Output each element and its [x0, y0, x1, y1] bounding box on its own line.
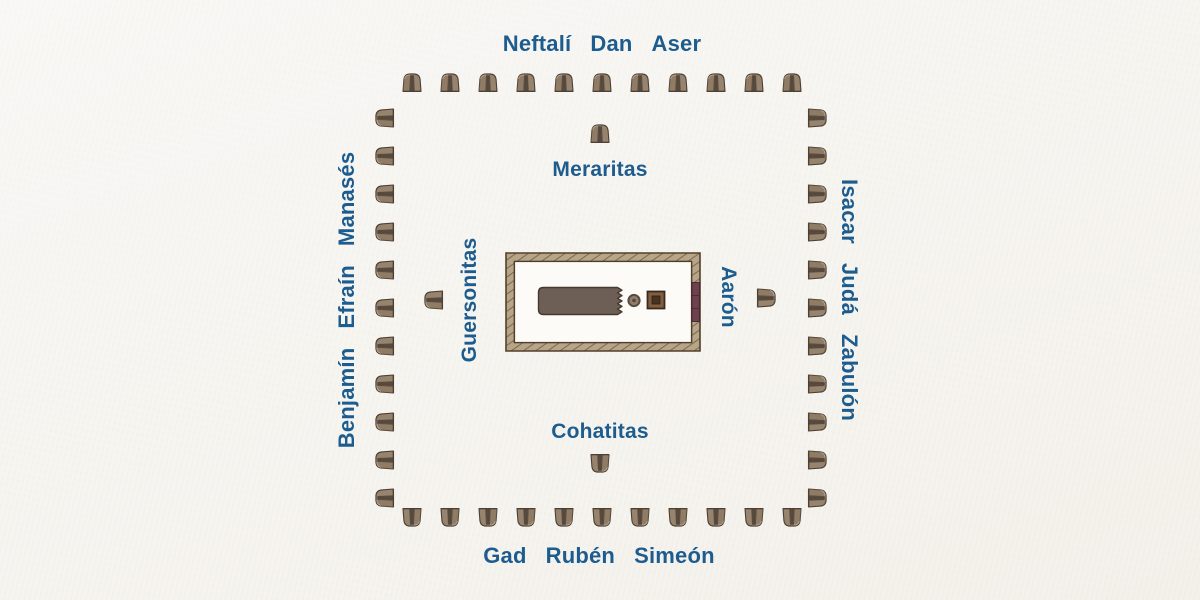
tent-icon	[588, 121, 612, 145]
tent-icon	[400, 506, 424, 530]
tent-icon	[476, 70, 500, 94]
tribe-name: Benjamín	[334, 348, 360, 449]
tribe-name: Judá	[836, 263, 862, 315]
levite-label-west: Guersonitas	[458, 238, 482, 363]
tribe-name: Isacar	[836, 179, 862, 244]
tent-icon	[552, 506, 576, 530]
tribe-name: Dan	[590, 31, 632, 57]
laver-center	[632, 299, 636, 303]
tribe-name: Zabulón	[836, 334, 862, 421]
tent-icon	[552, 70, 576, 94]
tent-icon	[372, 486, 396, 510]
tribe-name: Rubén	[546, 543, 615, 569]
tent-row-east	[806, 106, 830, 510]
tent-icon	[514, 70, 538, 94]
tent-icon	[400, 70, 424, 94]
tent-icon	[372, 182, 396, 206]
tent-icon	[372, 334, 396, 358]
tent-icon	[421, 288, 445, 312]
tribe-name: Neftalí	[503, 31, 572, 57]
tent-icon	[590, 506, 614, 530]
tribe-name: Efraín	[334, 265, 360, 329]
tent-icon	[780, 70, 804, 94]
levite-label-east: Aarón	[716, 266, 740, 328]
levite-tent-west	[421, 288, 445, 312]
tent-icon	[704, 70, 728, 94]
tent-icon	[590, 70, 614, 94]
tabernacle-tent	[539, 288, 623, 315]
tent-icon	[806, 486, 830, 510]
tent-icon	[372, 106, 396, 130]
tent-icon	[806, 334, 830, 358]
tribe-name: Manasés	[334, 152, 360, 246]
tent-icon	[372, 296, 396, 320]
tent-icon	[806, 372, 830, 396]
tribe-name: Aser	[652, 31, 702, 57]
tent-icon	[806, 410, 830, 434]
tent-icon	[372, 448, 396, 472]
tent-icon	[666, 506, 690, 530]
tribe-label-west: Benjamín Efraín Manasés	[334, 152, 360, 449]
tent-icon	[806, 296, 830, 320]
tent-icon	[372, 372, 396, 396]
tribe-label-south: Gad Rubén Simeón	[483, 543, 715, 569]
courtyard-gate	[692, 283, 699, 322]
tent-icon	[806, 448, 830, 472]
tribe-name: Simeón	[634, 543, 715, 569]
tent-row-north	[400, 70, 804, 94]
israelite-camp-diagram: Neftalí Dan Aser Isacar Judá Zabulón Gad…	[0, 0, 1200, 600]
tent-icon	[372, 144, 396, 168]
tent-icon	[806, 144, 830, 168]
tent-icon	[372, 410, 396, 434]
tent-icon	[806, 106, 830, 130]
levite-label-north: Meraritas	[552, 158, 647, 182]
tribe-label-north: Neftalí Dan Aser	[503, 31, 702, 57]
tent-icon	[780, 506, 804, 530]
tent-icon	[755, 286, 779, 310]
tent-row-south	[400, 506, 804, 530]
levite-tent-south	[588, 452, 612, 476]
tent-icon	[628, 506, 652, 530]
levite-label-south: Cohatitas	[551, 420, 648, 444]
tent-icon	[704, 506, 728, 530]
tent-icon	[666, 70, 690, 94]
tribe-label-east: Isacar Judá Zabulón	[836, 179, 862, 421]
tent-icon	[372, 258, 396, 282]
tent-icon	[476, 506, 500, 530]
tent-icon	[742, 506, 766, 530]
tent-icon	[438, 70, 462, 94]
tabernacle-courtyard	[505, 252, 701, 352]
altar-hearth	[652, 296, 660, 304]
levite-tent-north	[588, 121, 612, 145]
levite-tent-east	[755, 286, 779, 310]
tent-icon	[438, 506, 462, 530]
tent-icon	[588, 452, 612, 476]
tent-icon	[742, 70, 766, 94]
tent-icon	[806, 182, 830, 206]
tribe-name: Gad	[483, 543, 526, 569]
tent-icon	[806, 220, 830, 244]
tent-row-west	[372, 106, 396, 510]
tent-icon	[372, 220, 396, 244]
tent-icon	[806, 258, 830, 282]
tent-icon	[628, 70, 652, 94]
tent-icon	[514, 506, 538, 530]
